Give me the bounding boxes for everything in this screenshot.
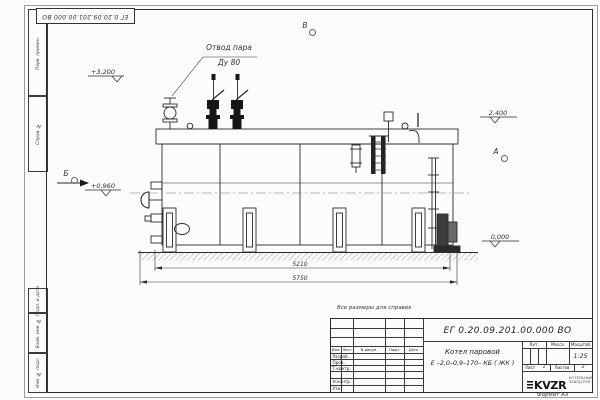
steam-outlet-leader bbox=[172, 57, 203, 96]
view-marker-left-label: Б bbox=[63, 169, 68, 178]
steam-outlet-dn-label: Ду 80 bbox=[218, 58, 240, 67]
reference-note: Все размеры для справок bbox=[337, 305, 412, 311]
ground-hatch bbox=[141, 253, 478, 261]
lit-header: Лит. bbox=[522, 342, 546, 348]
view-marker-left-circle bbox=[71, 177, 78, 184]
sign-row-tkontr: Т.контр. bbox=[333, 366, 351, 371]
feed-pump bbox=[434, 214, 460, 252]
boiler-body bbox=[162, 144, 453, 245]
sign-row-prov: Пров. bbox=[333, 360, 345, 365]
sign-row-utv: Утв. bbox=[333, 386, 342, 391]
sign-row-nkontr: Н.контр. bbox=[333, 379, 352, 384]
title-doc-number: ЕГ 0.20.09.201.00.000 ВО bbox=[423, 321, 592, 340]
view-marker-top-label: В bbox=[302, 21, 307, 30]
col-header-podp: Подп. bbox=[385, 347, 404, 353]
product-name: Котел паровой bbox=[423, 347, 522, 357]
col-header-izm: Изм. bbox=[331, 347, 341, 353]
dimension-inner-label: 5210 bbox=[292, 261, 307, 268]
col-header-list: Лист bbox=[341, 347, 353, 353]
elevation-0960-label: +0,960 bbox=[91, 182, 115, 190]
sign-row-razrab: Разраб. bbox=[333, 354, 349, 359]
title-block: ЕГ 0.20.09.201.00.000 ВО Изм. Лист N док… bbox=[330, 318, 593, 393]
view-marker-right-circle bbox=[501, 155, 508, 162]
dimension-outer-label: 5750 bbox=[292, 275, 307, 282]
logo-text: KVZR bbox=[534, 379, 566, 392]
elevation-0000-label: 0,000 bbox=[491, 233, 510, 241]
product-model: Е –2,0–0,9–170– КБ ( ЖК ) bbox=[423, 358, 522, 368]
scale-value: 1:25 bbox=[569, 349, 592, 363]
curved-pipe bbox=[409, 130, 419, 143]
sheet-label: Лист bbox=[522, 365, 538, 371]
sheets-value: 2 bbox=[574, 365, 592, 371]
logo-caption: КОТЕЛЬНЫЙ ЗАВОД РЭП bbox=[569, 376, 593, 385]
mass-header: Масса bbox=[546, 342, 569, 348]
gauge-assembly bbox=[369, 136, 388, 174]
steam-drum-top bbox=[156, 129, 458, 144]
sheets-label: Листов bbox=[550, 365, 574, 371]
col-header-data: Дата bbox=[404, 347, 423, 353]
drum-vent bbox=[187, 123, 193, 129]
steam-outlet-valve bbox=[163, 98, 177, 129]
scale-header: Масштаб bbox=[569, 342, 592, 348]
drawing-sheet: Перв. примен. Справ. № Подп. и дата Взам… bbox=[0, 0, 600, 400]
water-gauge bbox=[350, 145, 362, 173]
steam-outlet-label: Отвод пара bbox=[206, 43, 252, 52]
kvzr-logo: KVZR bbox=[527, 374, 571, 390]
manhole bbox=[175, 224, 190, 235]
logo-bars-icon bbox=[527, 381, 533, 390]
sheet-value: 1 bbox=[538, 365, 550, 371]
col-header-dokum: N докум. bbox=[353, 347, 385, 353]
elevation-2400-label: 2,400 bbox=[489, 109, 508, 117]
drum-vent bbox=[402, 123, 408, 129]
safety-valve-icon bbox=[206, 74, 244, 129]
view-marker-top-circle bbox=[309, 29, 316, 36]
view-marker-right-label: А bbox=[493, 147, 498, 156]
elevation-3200-label: +3,200 bbox=[91, 68, 115, 76]
